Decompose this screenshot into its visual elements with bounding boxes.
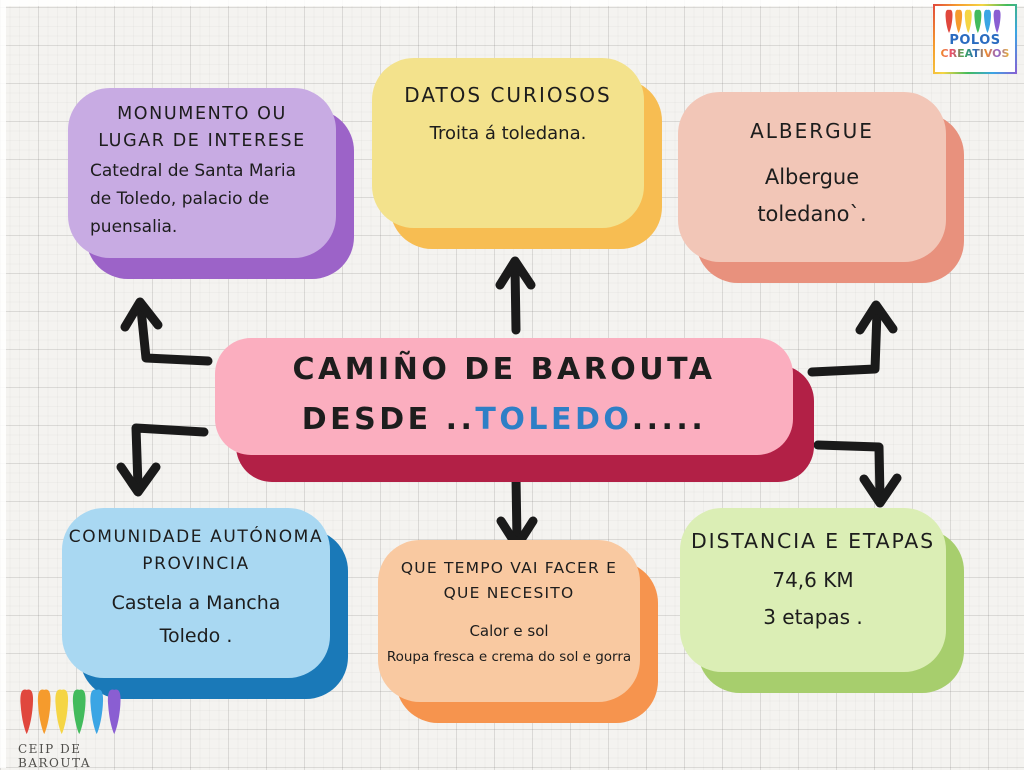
arrow-to-comunidade [136, 428, 204, 486]
paint-stroke-red [20, 689, 33, 734]
paint-stroke-green [73, 689, 86, 734]
node-body: Catedral de Santa Maria de Toledo, palac… [68, 157, 336, 241]
center-title-line1: CAMIÑO DE BAROUTA [292, 345, 715, 395]
paint-stroke-blue [90, 689, 103, 734]
paint-stroke-green [974, 10, 981, 33]
arrow-to-monumento [141, 309, 208, 361]
node-title: DATOS CURIOSOS [404, 82, 611, 109]
arrow-to-comunidade-head [121, 467, 156, 492]
paint-stroke-orange [955, 10, 962, 33]
node-body-line: 74,6 KM [763, 562, 863, 599]
polos-creativos-logo-inner: POLOS CREATIVOS [935, 6, 1015, 72]
center-toledo-text: TOLEDO [475, 402, 631, 437]
node-comunidade-card: COMUNIDADE AUTÓNOMA PROVINCIA Castela a … [62, 508, 330, 678]
node-title-line: QUE TEMPO VAI FACER E [401, 556, 617, 581]
center-desde-text: DESDE .. [302, 402, 476, 437]
node-datos-curiosos[interactable]: DATOS CURIOSOS Troita á toledana. [372, 58, 644, 228]
node-distancia-card: DISTANCIA E ETAPAS 74,6 KM 3 etapas . [680, 508, 946, 672]
arrow-to-distancia-head [864, 478, 897, 503]
node-body-line: Toledo . [112, 620, 281, 653]
node-title: QUE TEMPO VAI FACER E QUE NECESITO [401, 556, 617, 606]
node-title: ALBERGUE [750, 118, 874, 145]
ceip-barouta-logo: CEIP DE BAROUTA [18, 688, 148, 770]
arrow-to-datos-head [500, 261, 531, 285]
node-tempo-card: QUE TEMPO VAI FACER E QUE NECESITO Calor… [378, 540, 640, 702]
arrow-to-albergue-head [860, 305, 893, 330]
arrow-to-monumento-head [125, 302, 158, 327]
paint-stroke-red [946, 10, 953, 33]
arrow-to-datos [515, 267, 516, 330]
paint-stroke-purple [994, 10, 1001, 33]
node-datos-card: DATOS CURIOSOS Troita á toledana. [372, 58, 644, 228]
node-albergue[interactable]: ALBERGUE Albergue toledano`. [678, 92, 946, 262]
node-title: DISTANCIA E ETAPAS [691, 528, 935, 555]
center-title-line2: DESDE ..TOLEDO..... [302, 395, 706, 445]
paint-stroke-yellow [55, 689, 68, 734]
node-title-line: LUGAR DE INTERESE [98, 128, 306, 155]
node-body-line: Troita á toledana. [430, 119, 587, 149]
arrow-to-distancia [818, 445, 880, 497]
paint-stroke-purple [108, 689, 121, 734]
paint-stroke-blue [984, 10, 991, 33]
node-title-line: PROVINCIA [69, 551, 323, 578]
node-body-line: Castela a Mancha [112, 587, 281, 620]
node-distancia[interactable]: DISTANCIA E ETAPAS 74,6 KM 3 etapas . [680, 508, 946, 672]
node-monumento[interactable]: MONUMENTO OU LUGAR DE INTERESE Catedral … [68, 88, 336, 258]
node-body: Castela a Mancha Toledo . [112, 587, 281, 653]
node-title-line: QUE NECESITO [401, 581, 617, 606]
node-title-line: MONUMENTO OU [98, 101, 306, 128]
node-albergue-card: ALBERGUE Albergue toledano`. [678, 92, 946, 262]
ceip-logo-text: CEIP DE BAROUTA [18, 742, 148, 770]
node-body-line: Roupa fresca e crema do sol e gorra [387, 649, 631, 665]
center-dots-text: ..... [632, 402, 706, 437]
mindmap-poster: { "center": { "line1": "CAMIÑO DE BAROUT… [0, 0, 1024, 768]
paint-stroke-orange [38, 689, 51, 734]
node-body: Troita á toledana. [430, 119, 587, 149]
node-title-line: DISTANCIA E ETAPAS [691, 528, 935, 555]
node-body: Albergue toledano`. [757, 159, 866, 233]
node-title-line: COMUNIDADE AUTÓNOMA [69, 524, 323, 551]
node-body-line: de Toledo, palacio de [90, 185, 336, 213]
node-title: MONUMENTO OU LUGAR DE INTERESE [98, 101, 306, 155]
arrow-to-albergue [812, 312, 877, 372]
node-title-line: DATOS CURIOSOS [404, 82, 611, 109]
polos-creativos-logo: POLOS CREATIVOS [933, 4, 1017, 74]
arrow-to-tempo [516, 478, 517, 539]
node-tempo[interactable]: QUE TEMPO VAI FACER E QUE NECESITO Calor… [378, 540, 640, 702]
creativos-logo-text: CREATIVOS [941, 48, 1010, 60]
node-body-line: toledano`. [757, 196, 866, 233]
paint-strokes-icon [18, 688, 130, 736]
polos-logo-text: POLOS [949, 34, 1000, 48]
node-title-line: ALBERGUE [750, 118, 874, 145]
node-title: COMUNIDADE AUTÓNOMA PROVINCIA [69, 524, 323, 578]
node-center-title[interactable]: CAMIÑO DE BAROUTA DESDE ..TOLEDO..... [215, 338, 793, 455]
node-body-line: Calor e sol [469, 622, 548, 640]
node-comunidade[interactable]: COMUNIDADE AUTÓNOMA PROVINCIA Castela a … [62, 508, 330, 678]
node-body-line: 3 etapas . [763, 599, 863, 636]
paint-strokes-icon [944, 9, 1006, 34]
paint-stroke-yellow [965, 10, 972, 33]
node-body: 74,6 KM 3 etapas . [763, 562, 863, 636]
node-monumento-card: MONUMENTO OU LUGAR DE INTERESE Catedral … [68, 88, 336, 258]
node-body-line: Catedral de Santa Maria [90, 157, 336, 185]
node-body-line: puensalia. [90, 213, 336, 241]
node-center-card: CAMIÑO DE BAROUTA DESDE ..TOLEDO..... [215, 338, 793, 455]
node-body-line: Albergue [757, 159, 866, 196]
